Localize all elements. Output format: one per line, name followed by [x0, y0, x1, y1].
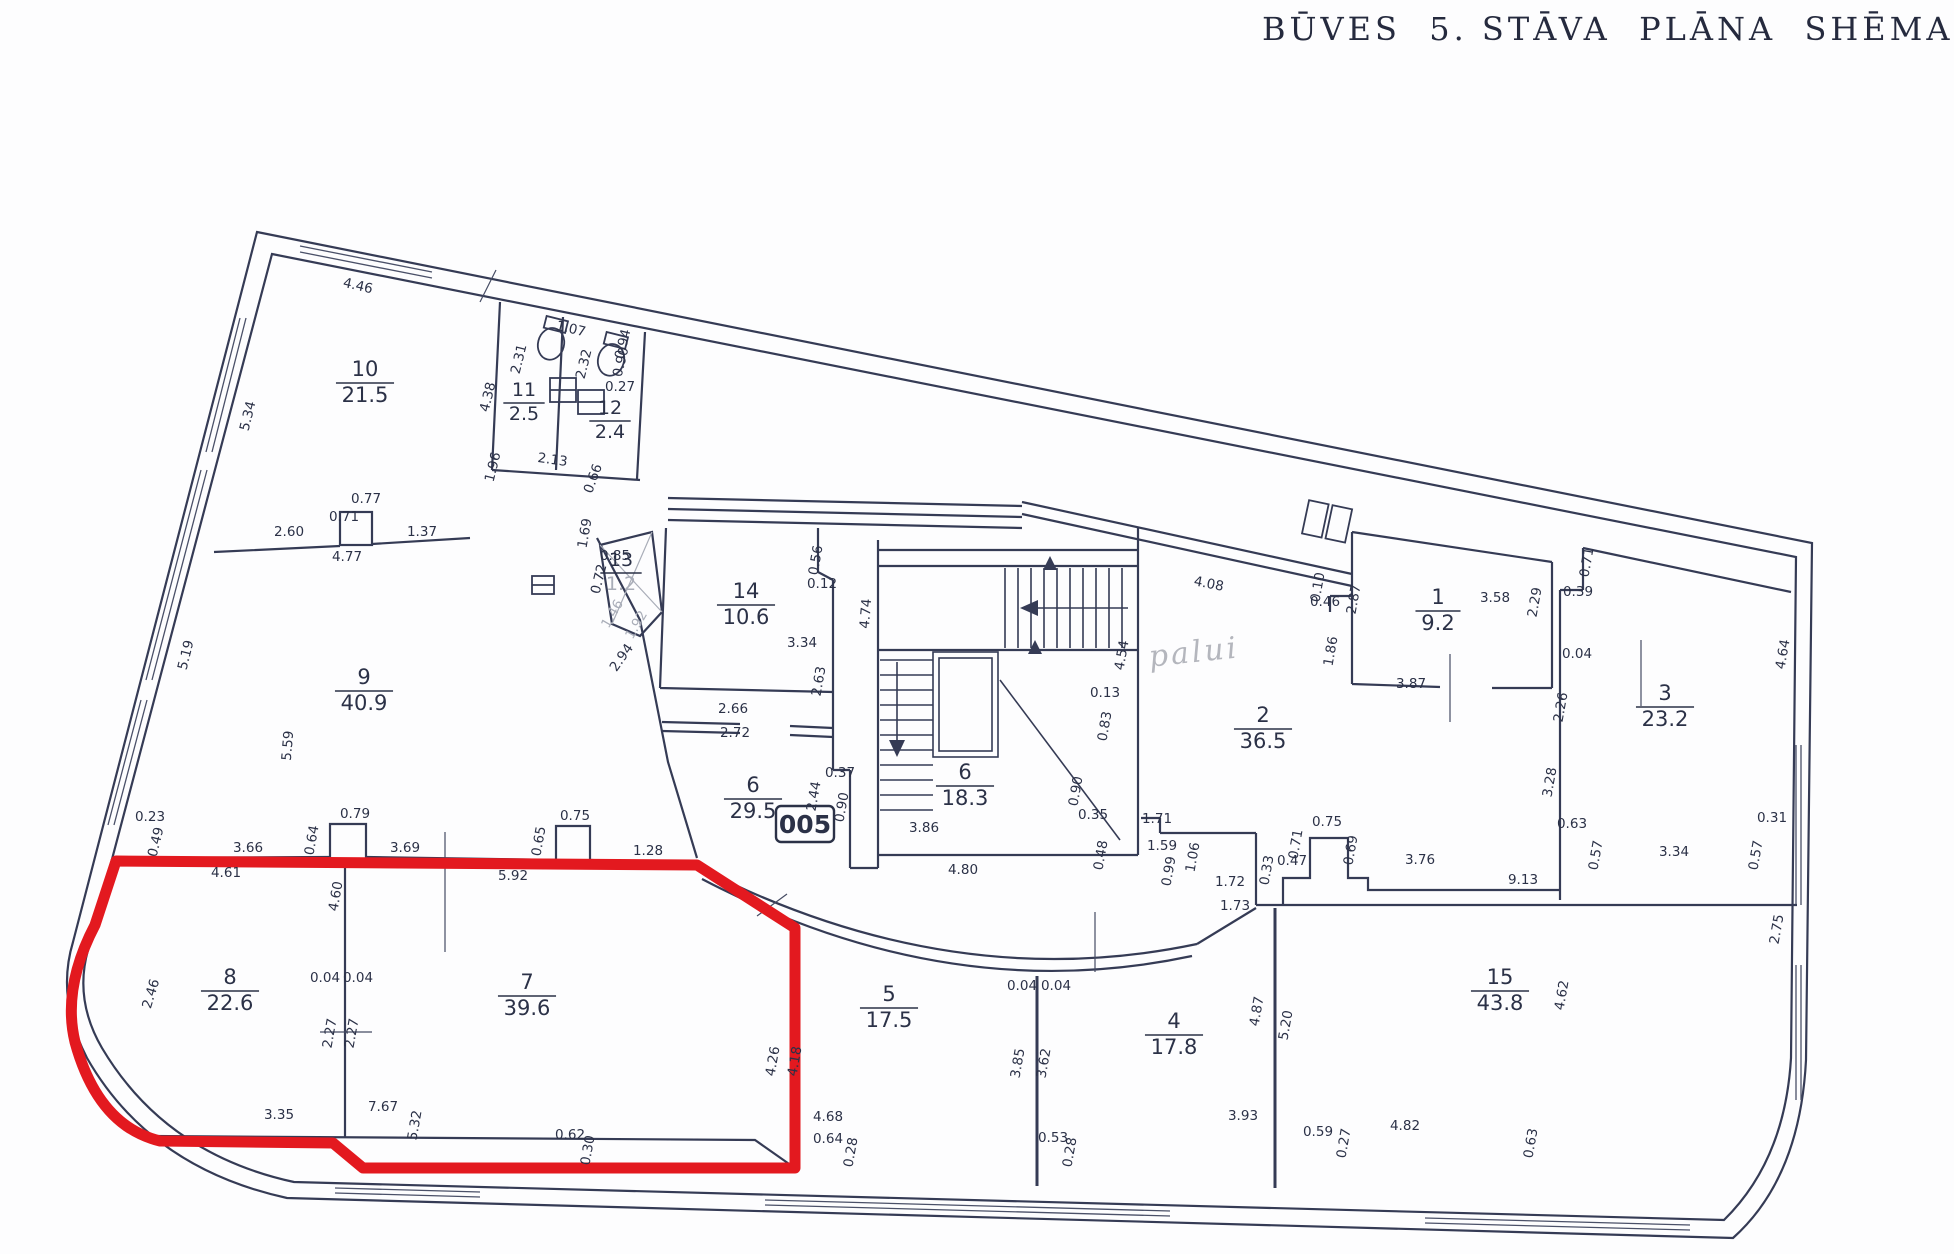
- room-area-11: 2.5: [509, 403, 539, 425]
- dim-label: 0.46: [1310, 594, 1340, 610]
- dim-label: 0.13: [1090, 685, 1120, 701]
- dim-label: 0.04: [1562, 646, 1592, 662]
- dim-label: 0.66: [581, 462, 606, 496]
- highlight-outline-rooms-7-8: [71, 861, 795, 1168]
- dim-label: 0.63: [1521, 1127, 1542, 1159]
- dim-label: 0.77: [351, 491, 381, 507]
- dim-label: 0.49: [145, 826, 168, 859]
- dim-label: 3.87: [1396, 676, 1426, 692]
- dim-label: 4.80: [948, 862, 978, 878]
- room-number-7: 7: [520, 970, 533, 994]
- dim-label: 4.64: [1773, 638, 1794, 670]
- stair-arrow-left: [1020, 600, 1038, 616]
- room-area-4: 17.8: [1151, 1035, 1198, 1059]
- dim-label: 3.69: [390, 840, 420, 856]
- room-number-9: 9: [357, 665, 370, 689]
- room-area-7: 39.6: [504, 996, 551, 1020]
- room-area-6: 18.3: [942, 786, 989, 810]
- room-area-13: 1.2: [606, 573, 636, 595]
- dim-label: 0.04: [310, 970, 340, 986]
- boxed-label-text: 005: [779, 810, 831, 839]
- dim-label: 5.32: [405, 1109, 426, 1141]
- dim-label: 1.46: [598, 597, 627, 631]
- room-area-2: 36.5: [1240, 729, 1287, 753]
- dim-label: 1.72: [1215, 874, 1245, 890]
- dim-label: 4.08: [1192, 573, 1225, 594]
- dim-label: 0.33: [1257, 854, 1278, 886]
- dim-label: 0.27: [1334, 1127, 1355, 1159]
- interior-walls: [115, 302, 1797, 1188]
- room-area-8: 22.6: [207, 991, 254, 1015]
- room-area-3: 23.2: [1642, 707, 1689, 731]
- dim-label: 3.76: [1405, 852, 1435, 868]
- floor-plan-page: 005 BŪVES 5. STĀVA PLĀNA SHĒMA palui 19.…: [0, 0, 1954, 1254]
- dim-label: 2.75: [1767, 913, 1788, 945]
- dim-label: 2.31: [508, 343, 531, 376]
- dim-label: 0.57: [1746, 839, 1767, 871]
- room-number-4: 4: [1167, 1009, 1180, 1033]
- dim-label: 1.07: [554, 318, 587, 340]
- dim-label: 4.82: [1390, 1118, 1420, 1134]
- dim-label: 3.93: [1228, 1108, 1258, 1124]
- elevator-shaft: [933, 652, 998, 757]
- dim-label: 0.90: [1066, 775, 1087, 807]
- dim-label: 1.69: [575, 517, 596, 549]
- dim-label: 0.65: [529, 825, 550, 857]
- dim-label: 2.27: [320, 1017, 341, 1049]
- dim-label: 0.64: [813, 1131, 843, 1147]
- dim-label: 3.86: [909, 820, 939, 836]
- dim-label: 4.54: [1112, 639, 1133, 671]
- room-area-10: 21.5: [342, 383, 389, 407]
- dim-label: 2.60: [274, 524, 304, 540]
- dim-label: 1.37: [407, 524, 437, 540]
- dim-label: 0.12: [807, 576, 837, 592]
- dim-label: 0.62: [555, 1127, 585, 1143]
- dim-label: 0.75: [1312, 814, 1342, 830]
- dim-label: 0.64: [302, 824, 323, 856]
- dim-label: 4.26: [763, 1045, 784, 1077]
- dim-label: 1.59: [1147, 838, 1177, 854]
- dim-label: 0.99: [1159, 855, 1180, 887]
- dim-label: 4.62: [1552, 979, 1573, 1011]
- dim-label: 2.13: [537, 450, 569, 470]
- dim-label: 2.66: [718, 701, 748, 717]
- dim-label: 3.35: [264, 1107, 294, 1123]
- dim-label: 4.46: [341, 275, 374, 297]
- dim-label: 4.18: [785, 1045, 806, 1077]
- dim-label: 0.31: [1757, 810, 1787, 826]
- dim-label: 0.04: [343, 970, 373, 986]
- dim-label: 0.71: [329, 509, 359, 525]
- dim-label: 2.29: [1525, 586, 1546, 618]
- dim-label: 0.23: [135, 809, 165, 825]
- dim-label: 5.59: [279, 730, 298, 761]
- room-number-2: 2: [1256, 703, 1269, 727]
- dim-label: 5.19: [175, 639, 198, 672]
- dim-label: 1.71: [1142, 811, 1172, 827]
- dim-label: 4.68: [813, 1109, 843, 1125]
- boxed-label-005: 005: [776, 806, 834, 842]
- room-number-11: 11: [512, 379, 536, 401]
- dim-label: 0.85: [600, 548, 630, 564]
- dim-label: 0.39: [1563, 584, 1593, 600]
- dim-label: 5.92: [498, 868, 528, 884]
- dim-label: 4.60: [326, 880, 347, 912]
- entrance-door-rects: [1302, 500, 1352, 542]
- dim-label: 1.06: [1183, 841, 1204, 873]
- labels-layer: 19.2236.5323.2417.8517.5629.5618.3739.68…: [135, 275, 1794, 1169]
- dim-label: 7.67: [368, 1099, 398, 1115]
- dim-label: 4.61: [211, 865, 241, 881]
- room-area-12: 2.4: [595, 421, 625, 443]
- dim-label: 1.86: [1321, 635, 1342, 667]
- dim-label: 4.38: [477, 381, 500, 414]
- dim-label: 0.28: [841, 1136, 862, 1168]
- dim-label: 0.48: [1091, 839, 1112, 871]
- dim-label: 2.94: [607, 641, 637, 675]
- room-area-9: 40.9: [341, 691, 388, 715]
- room-area-1: 9.2: [1421, 611, 1454, 635]
- dim-label: 1.73: [1220, 898, 1250, 914]
- dim-label: 2.26: [1551, 691, 1572, 723]
- room-area-6: 29.5: [730, 799, 777, 823]
- dim-label: 4.74: [857, 598, 876, 629]
- room-area-14: 10.6: [723, 605, 770, 629]
- dim-label: 0.83: [1095, 710, 1116, 742]
- dim-label: 2.46: [139, 977, 163, 1010]
- floor-plan-drawing: 005 BŪVES 5. STĀVA PLĀNA SHĒMA palui 19.…: [0, 0, 1954, 1254]
- dim-label: 3.85: [1008, 1047, 1029, 1079]
- room-number-10: 10: [352, 357, 379, 381]
- dim-label: 0.35: [1078, 807, 1108, 823]
- fixtures: [532, 316, 1352, 624]
- dim-label: 0.04: [1041, 978, 1071, 994]
- dim-label: 0.71: [1577, 546, 1598, 578]
- dim-label: 3.66: [233, 840, 263, 856]
- dim-label: 3.58: [1480, 590, 1510, 606]
- dim-label: 4.77: [332, 549, 362, 565]
- room-number-1: 1: [1431, 585, 1444, 609]
- room-number-15: 15: [1487, 965, 1514, 989]
- dim-label: 2.87: [1344, 583, 1365, 615]
- dim-label: 1.28: [633, 843, 663, 859]
- dim-label: 2.32: [573, 348, 596, 381]
- dim-label: 0.56: [806, 544, 827, 576]
- dim-label: 0.75: [560, 808, 590, 824]
- room-number-5: 5: [882, 982, 895, 1006]
- dim-label: 4.87: [1247, 995, 1268, 1027]
- room-number-6: 6: [958, 760, 971, 784]
- room-number-14: 14: [733, 579, 760, 603]
- dim-label: 1.92: [622, 608, 651, 642]
- dim-label: 0.57: [1586, 839, 1607, 871]
- dim-label: 5.34: [237, 400, 260, 433]
- dim-label: 2.72: [720, 725, 750, 741]
- dim-label: 9.13: [1508, 872, 1538, 888]
- dim-label: 3.34: [787, 635, 817, 651]
- dim-label: 5.20: [1276, 1009, 1297, 1041]
- dim-label: 3.28: [1540, 766, 1561, 798]
- room-number-12: 12: [598, 397, 622, 419]
- dim-label: 1.96: [482, 451, 505, 484]
- dim-label: 0.79: [340, 806, 370, 822]
- dim-label: 0.59: [1303, 1124, 1333, 1140]
- handwritten-note: palui: [1147, 630, 1241, 674]
- dim-label: 0.04: [1007, 978, 1037, 994]
- room-number-8: 8: [223, 965, 236, 989]
- room-area-5: 17.5: [866, 1008, 913, 1032]
- room-number-3: 3: [1658, 681, 1671, 705]
- stair-arrow-down: [889, 740, 905, 757]
- dim-label: 0.63: [1557, 816, 1587, 832]
- room-area-15: 43.8: [1477, 991, 1524, 1015]
- drawing-title: BŪVES 5. STĀVA PLĀNA SHĒMA: [1262, 10, 1954, 48]
- dim-label: 3.34: [1659, 844, 1689, 860]
- dim-label: 0.27: [605, 379, 635, 395]
- room-number-6: 6: [746, 773, 759, 797]
- dim-label: 2.44: [804, 780, 825, 812]
- dim-label: 0.37: [825, 765, 855, 781]
